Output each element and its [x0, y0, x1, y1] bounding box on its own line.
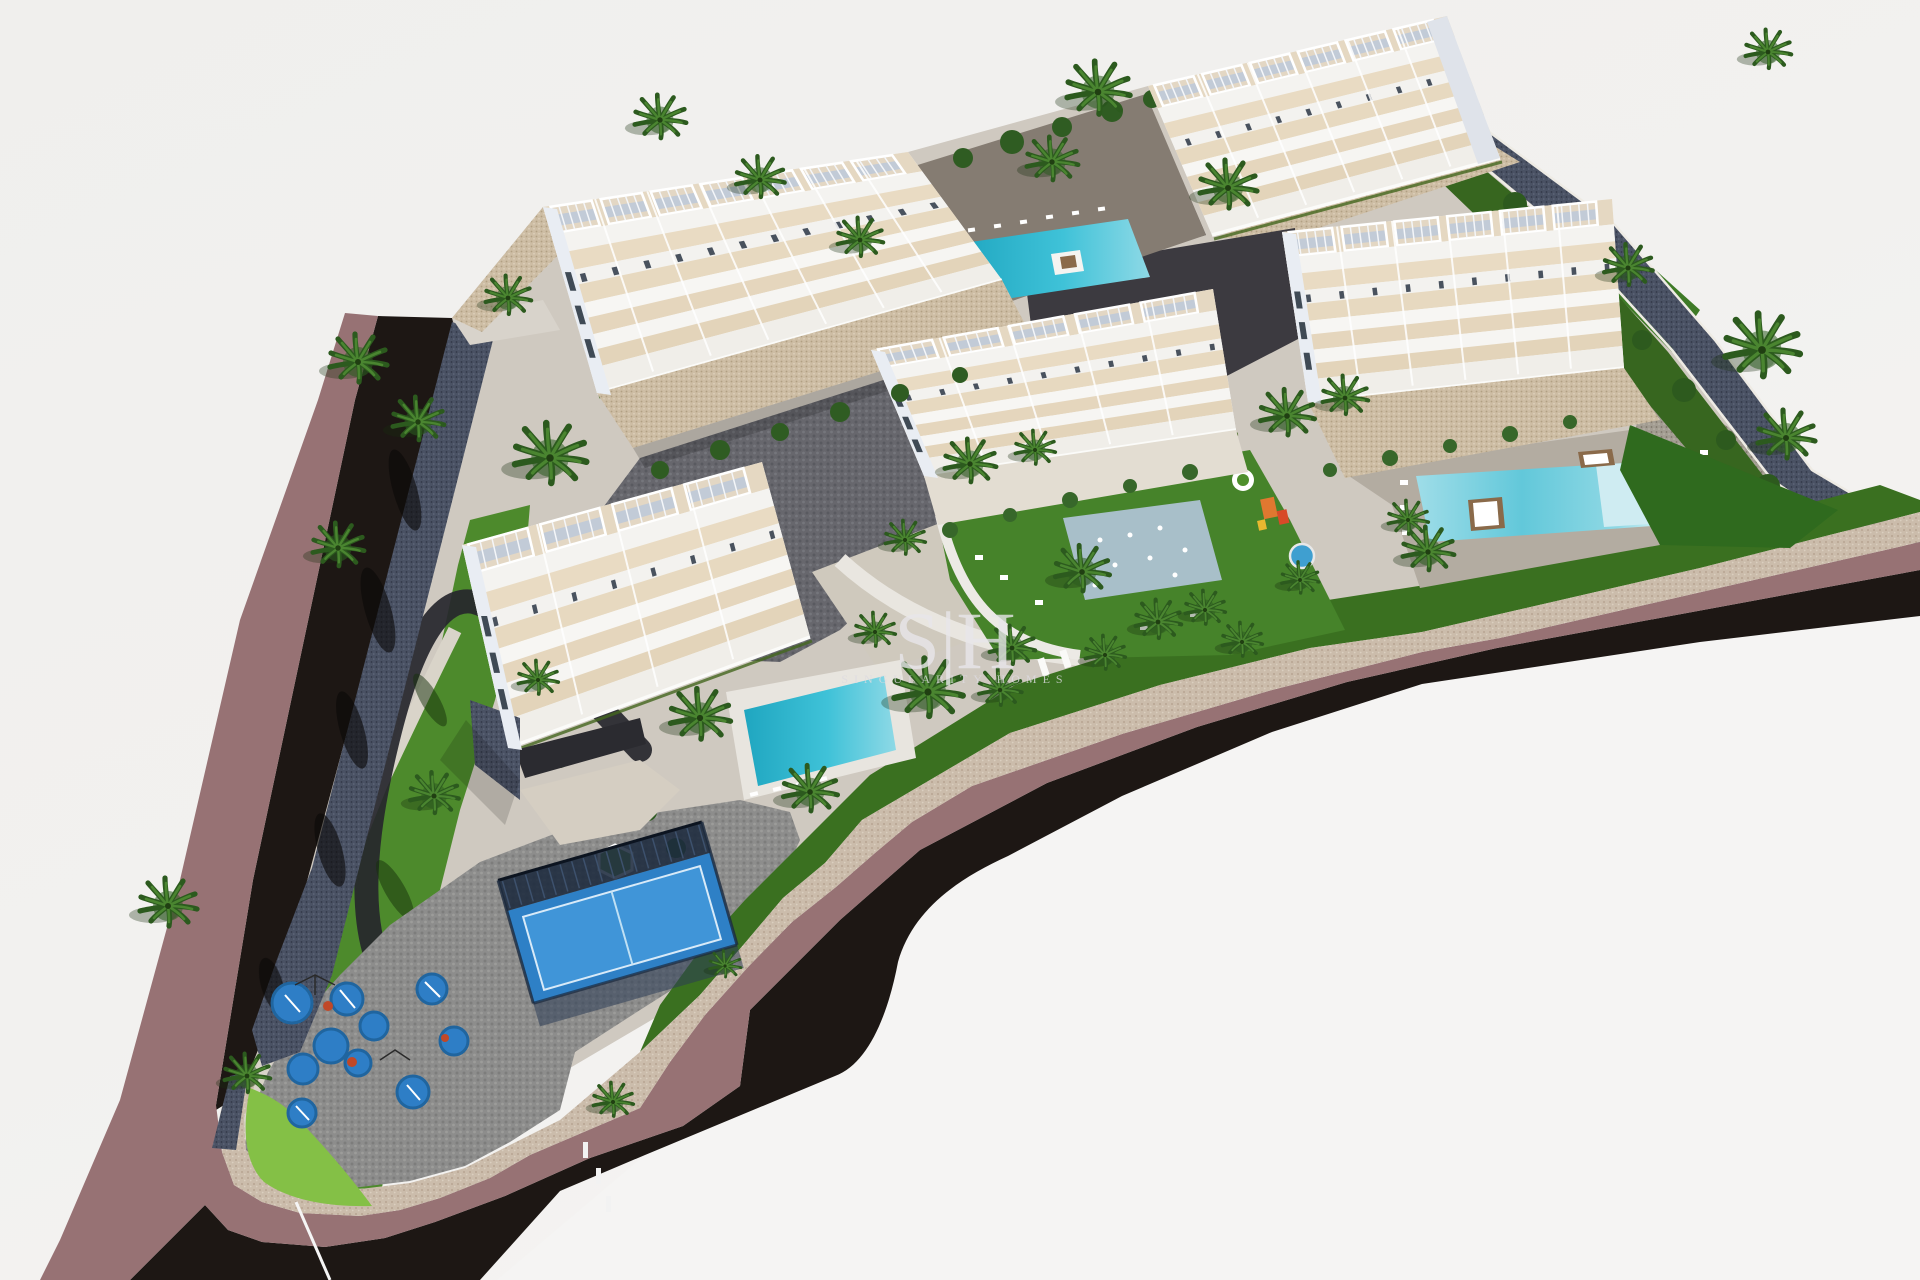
- svg-text:SINGULARITY HOMES: SINGULARITY HOMES: [841, 672, 1068, 686]
